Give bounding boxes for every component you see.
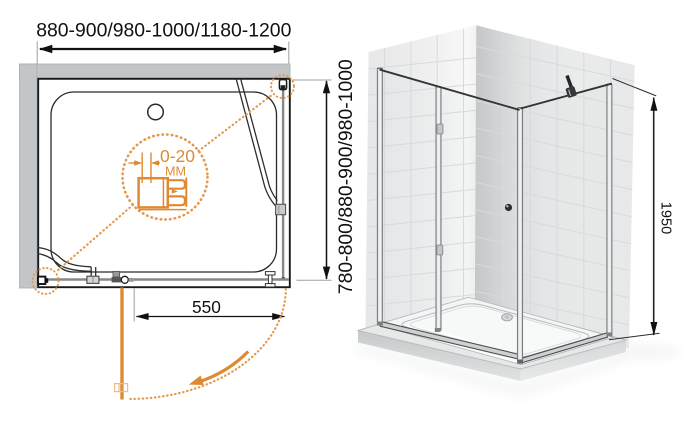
svg-text:1950: 1950 [657, 202, 673, 234]
svg-text:550: 550 [192, 297, 221, 317]
svg-text:ММ: ММ [165, 165, 186, 179]
svg-text:880-900/980-1000/1180-1200: 880-900/980-1000/1180-1200 [36, 19, 291, 41]
svg-text:780-800/880-900/980-1000: 780-800/880-900/980-1000 [335, 59, 357, 294]
svg-text:0-20: 0-20 [160, 146, 195, 166]
